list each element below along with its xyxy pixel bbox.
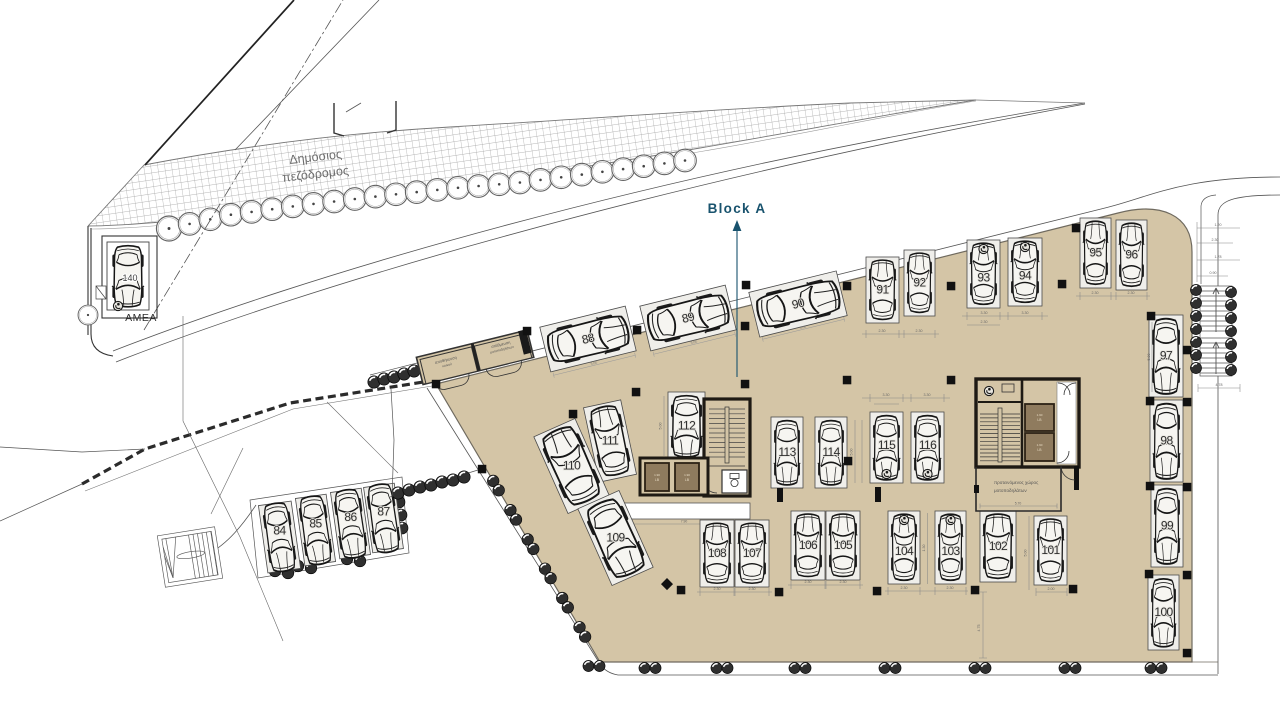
svg-text:116: 116: [919, 438, 937, 452]
svg-text:2.30: 2.30: [1128, 291, 1135, 295]
svg-text:3.30: 3.30: [981, 311, 988, 315]
svg-text:1.90: 1.90: [1037, 443, 1043, 447]
svg-text:110: 110: [563, 459, 581, 473]
svg-text:97: 97: [1160, 349, 1173, 363]
svg-text:μοτοποδηλάτων: μοτοποδηλάτων: [994, 487, 1027, 493]
svg-text:Block A: Block A: [708, 201, 767, 216]
svg-text:7.90: 7.90: [681, 520, 688, 524]
svg-text:85: 85: [309, 517, 322, 531]
svg-text:3.30: 3.30: [1022, 311, 1029, 315]
svg-text:105: 105: [834, 538, 853, 552]
svg-text:99: 99: [1161, 519, 1174, 533]
svg-text:96: 96: [1125, 248, 1138, 262]
svg-text:109: 109: [606, 531, 625, 545]
svg-text:2.30: 2.30: [1212, 238, 1219, 242]
svg-text:111: 111: [602, 434, 619, 448]
svg-text:1.90: 1.90: [684, 473, 690, 477]
svg-text:LB: LB: [1037, 448, 1042, 452]
svg-text:86: 86: [344, 510, 357, 524]
svg-text:προτεινόμενος χώρος: προτεινόμενος χώρος: [994, 479, 1039, 485]
svg-text:94: 94: [1019, 269, 1032, 283]
svg-text:5.00: 5.00: [1147, 354, 1151, 361]
svg-text:112: 112: [678, 419, 696, 433]
svg-text:98: 98: [1160, 434, 1173, 448]
svg-text:4.75: 4.75: [977, 625, 981, 632]
svg-text:5.00: 5.00: [659, 423, 663, 430]
svg-text:LB: LB: [685, 478, 690, 482]
svg-text:2.30: 2.30: [901, 586, 908, 590]
svg-text:95: 95: [1089, 246, 1102, 260]
svg-text:92: 92: [913, 276, 926, 290]
svg-text:91: 91: [876, 283, 889, 297]
svg-text:113: 113: [778, 445, 796, 459]
svg-text:AMEA: AMEA: [125, 312, 157, 324]
svg-text:3.30: 3.30: [924, 393, 931, 397]
svg-text:2.30: 2.30: [714, 587, 721, 591]
svg-text:LB: LB: [655, 478, 660, 482]
svg-text:4.78: 4.78: [1216, 383, 1223, 387]
svg-text:102: 102: [989, 539, 1008, 553]
svg-text:5.70: 5.70: [1015, 502, 1022, 506]
svg-text:2.00: 2.00: [1048, 587, 1055, 591]
svg-text:103: 103: [941, 544, 960, 558]
svg-text:5.00: 5.00: [1024, 550, 1028, 557]
svg-text:107: 107: [743, 546, 762, 560]
svg-text:115: 115: [878, 438, 896, 452]
svg-text:101: 101: [1041, 543, 1060, 557]
svg-text:2.30: 2.30: [981, 320, 988, 324]
svg-text:2.30: 2.30: [916, 329, 923, 333]
svg-text:LB: LB: [1037, 418, 1042, 422]
svg-text:3.30: 3.30: [883, 393, 890, 397]
svg-text:100: 100: [1154, 605, 1173, 619]
svg-text:2.30: 2.30: [840, 580, 847, 584]
svg-text:106: 106: [799, 538, 818, 552]
svg-text:93: 93: [977, 271, 990, 285]
svg-text:2.30: 2.30: [749, 587, 756, 591]
svg-text:1.90: 1.90: [654, 473, 660, 477]
svg-text:5.00: 5.00: [850, 449, 854, 456]
svg-text:2.30: 2.30: [1092, 291, 1099, 295]
svg-text:114: 114: [822, 445, 840, 459]
svg-text:0.90: 0.90: [1210, 271, 1217, 275]
svg-text:104: 104: [895, 544, 914, 558]
svg-text:1.90: 1.90: [1037, 413, 1043, 417]
svg-text:2.30: 2.30: [805, 580, 812, 584]
svg-text:140: 140: [122, 273, 137, 283]
svg-text:1.78: 1.78: [1215, 255, 1222, 259]
svg-text:84: 84: [273, 524, 286, 538]
svg-text:108: 108: [708, 546, 727, 560]
svg-text:2.30: 2.30: [947, 586, 954, 590]
svg-text:1.20: 1.20: [1215, 223, 1222, 227]
svg-text:1.30: 1.30: [922, 545, 926, 552]
svg-text:2.30: 2.30: [879, 329, 886, 333]
svg-text:87: 87: [377, 505, 390, 519]
